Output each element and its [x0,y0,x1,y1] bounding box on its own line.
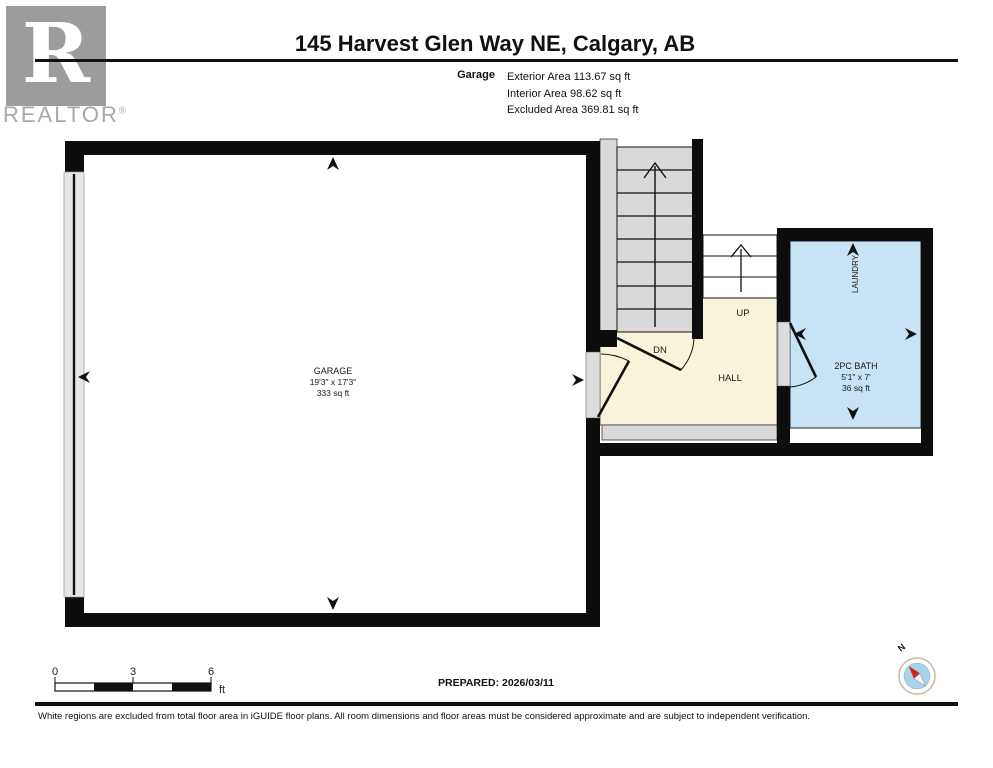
garage-down-arrow-icon [327,597,339,610]
hall-name-label: HALL [718,373,742,384]
scale-tick-6: 6 [208,666,214,678]
scale-unit-label: ft [219,684,225,696]
prepared-date: PREPARED: 2026/03/11 [396,677,596,689]
scale-tick-3: 3 [130,666,136,678]
dn-label: DN [653,345,667,356]
hall-bottom-wall [586,443,933,456]
garage-dimensions-label: 19'3" x 17'3" [310,377,357,387]
hall-threshold-strip [602,425,777,440]
garage-topleft-corner [65,141,84,172]
garage-top-wall [65,141,600,155]
garage-area-label: 333 sq ft [317,388,350,398]
footer-rule [35,702,958,706]
up-label: UP [736,308,749,319]
landing-steps [703,235,777,298]
garage-door-threshold [586,352,600,418]
garage-name-label: GARAGE [314,366,353,376]
bath-top-wall [777,228,933,241]
scale-labels: 0 3 6 [52,666,214,678]
garage-bottom-wall [65,613,600,627]
scale-bar-segment-1 [94,683,133,691]
bath-door-threshold [778,322,790,386]
stairs-right-wall [692,139,703,339]
floorplan-page: R REALTOR® 145 Harvest Glen Way NE, Calg… [0,0,993,768]
bath-name-label: 2PC BATH [834,361,877,371]
garage-right-wall-upper [586,141,600,352]
bath-left-wall-upper [777,241,790,322]
stairs-landing [703,235,777,298]
laundry-label: LAUNDRY [851,254,860,293]
scale-bar: 0 3 6 ft [52,666,225,696]
floorplan-drawing: GARAGE 19'3" x 17'3" 333 sq ft HALL UP D… [0,0,993,768]
bath-area-label: 36 sq ft [842,383,871,393]
dn-door-hinge-wall [598,330,617,347]
garage-right-arrow-icon [572,374,584,386]
scale-bar-segment-2 [172,683,211,691]
bath-dimensions-label: 5'1" x 7' [841,372,871,382]
garage-up-arrow-icon [327,157,339,170]
bath-right-wall [921,228,933,456]
footer-disclaimer: White regions are excluded from total fl… [38,711,968,722]
stairs-sidewall [600,139,617,332]
garage-overhead-door [64,172,84,597]
compass-north-label: N [896,642,907,654]
compass-icon: N [896,642,935,694]
stairs-main [600,139,693,332]
scale-tick-0: 0 [52,666,58,678]
